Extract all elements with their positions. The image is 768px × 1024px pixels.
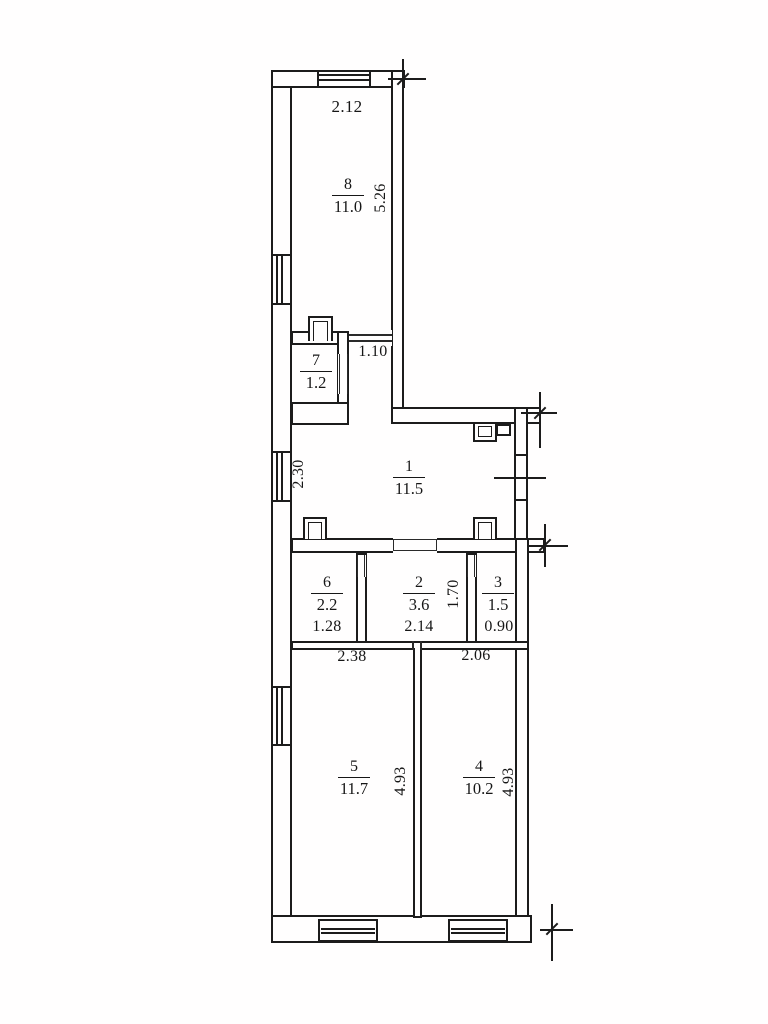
vent-room7-inner: [313, 321, 328, 341]
room-1-label: 1 11.5: [383, 458, 435, 498]
dim-room3-width: 0.90: [472, 618, 526, 636]
room-6-label: 6 2.2: [302, 574, 352, 614]
dim-room6-width: 1.28: [300, 618, 354, 636]
tick-topright-line: [388, 78, 426, 80]
door-room8-line-bottom: [349, 340, 392, 342]
window-left1-glass2: [281, 254, 283, 305]
room-7-number: 7: [300, 352, 332, 372]
floor-plan: 8 11.0 7 1.2 1 11.5 6 2.2 2 3.6 3 1.5 5 …: [0, 0, 768, 1024]
room-4-label: 4 10.2: [451, 758, 507, 798]
dim-hall-width: 1.10: [350, 343, 396, 361]
dim-room4-top: 2.06: [449, 647, 503, 665]
room-4-area: 10.2: [451, 780, 507, 798]
dim-room1-wall: 2.30: [290, 444, 310, 504]
room-8-number: 8: [332, 176, 364, 196]
vent-room1-bottomright-inner: [478, 522, 492, 539]
door-room1-bottom-frame: [393, 539, 437, 551]
window-bottom-room5-glass2: [321, 932, 375, 934]
dim-room2-depth: 1.70: [445, 564, 465, 624]
door-6-2-jamb-left: [357, 555, 358, 577]
window-bottom-room4: [448, 919, 508, 942]
room-7-label: 7 1.2: [294, 352, 338, 392]
room1-right-wall-divider1: [514, 454, 528, 456]
room-1-number: 1: [393, 458, 425, 478]
window-top-glass2: [317, 79, 371, 81]
vent-room1-bottomleft-inner: [308, 522, 322, 539]
gap-5-4-jamb-left: [412, 641, 414, 650]
room-3-label: 3 1.5: [473, 574, 523, 614]
room-8-area: 11.0: [319, 198, 377, 216]
wall-room1-right: [514, 407, 528, 553]
room-5-label: 5 11.7: [326, 758, 382, 798]
dim-top-width: 2.12: [319, 97, 375, 117]
gap-5-4-jamb-right: [420, 641, 422, 650]
tick-room1-bottom-line: [528, 545, 568, 547]
window-left2-glass1: [276, 451, 278, 502]
window-bottom-room4-glass2: [451, 932, 505, 934]
window-left3-glass1: [276, 686, 278, 746]
tick-room1-mid-line: [494, 477, 546, 479]
window-bottom-room5-glass1: [321, 928, 375, 930]
vent-room1-topright-inner: [478, 426, 492, 437]
room-3-number: 3: [482, 574, 514, 594]
wall-room1-top-left: [291, 402, 349, 425]
door-6-2-jamb-right: [364, 555, 365, 577]
room-2-label: 2 3.6: [394, 574, 444, 614]
room1-right-wall-divider2: [514, 499, 528, 501]
window-left2-glass2: [281, 451, 283, 502]
dim-room4-depth: 4.93: [500, 752, 520, 812]
room-7-area: 1.2: [294, 374, 338, 392]
wall-left: [271, 70, 292, 943]
dim-room5-top: 2.38: [325, 648, 379, 666]
dim-room2-width: 2.14: [392, 618, 446, 636]
window-bottom-room5: [318, 919, 378, 942]
room-1-area: 11.5: [383, 480, 435, 498]
room-5-area: 11.7: [326, 780, 382, 798]
dim-room5-depth: 4.93: [392, 751, 412, 811]
window-left1-glass1: [276, 254, 278, 305]
room-3-area: 1.5: [473, 596, 523, 614]
door-room8-line-top: [349, 334, 392, 336]
tick-bottomright-ext: [551, 904, 553, 961]
dim-room8-depth: 5.26: [372, 168, 392, 228]
vent-room1-topright-ext: [496, 424, 511, 436]
door-room7-jamb-left: [339, 354, 340, 394]
room-2-number: 2: [403, 574, 435, 594]
room-6-area: 2.2: [302, 596, 352, 614]
room-5-number: 5: [338, 758, 370, 778]
room-4-number: 4: [463, 758, 495, 778]
window-left3-glass2: [281, 686, 283, 746]
window-top-glass1: [317, 74, 371, 76]
room-8-label: 8 11.0: [319, 176, 377, 216]
room-2-area: 3.6: [394, 596, 444, 614]
tick-room1-top-ext: [539, 392, 541, 448]
room-6-number: 6: [311, 574, 343, 594]
wall-partition-5-4: [413, 645, 422, 918]
tick-bottomright-line: [540, 929, 573, 931]
wall-right-upper: [391, 70, 404, 417]
door-2-3-jamb-left: [467, 555, 468, 577]
door-room7-jamb-right: [347, 354, 348, 394]
window-bottom-room4-glass1: [451, 928, 505, 930]
